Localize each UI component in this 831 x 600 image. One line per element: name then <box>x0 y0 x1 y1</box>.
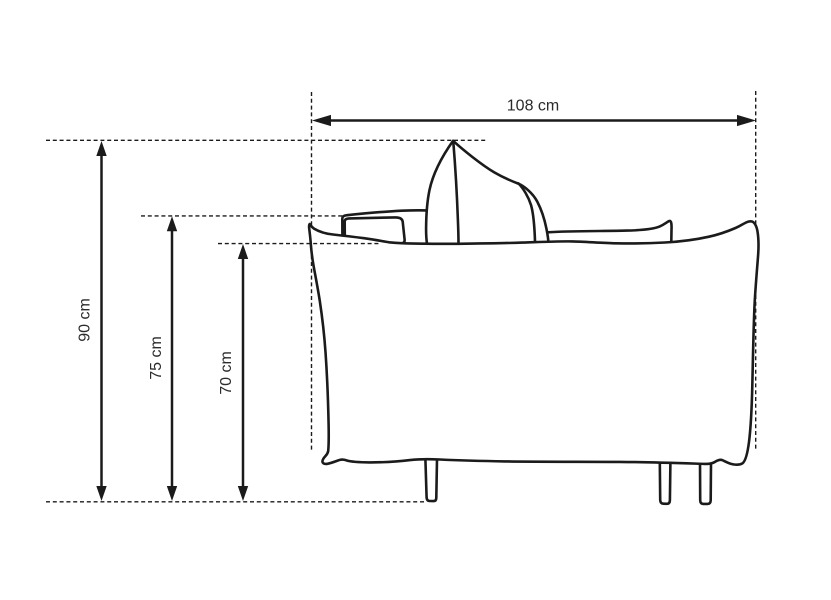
svg-text:90 cm: 90 cm <box>77 298 94 342</box>
svg-text:108 cm: 108 cm <box>507 98 559 115</box>
svg-text:75 cm: 75 cm <box>148 336 165 380</box>
svg-text:70 cm: 70 cm <box>218 351 235 395</box>
